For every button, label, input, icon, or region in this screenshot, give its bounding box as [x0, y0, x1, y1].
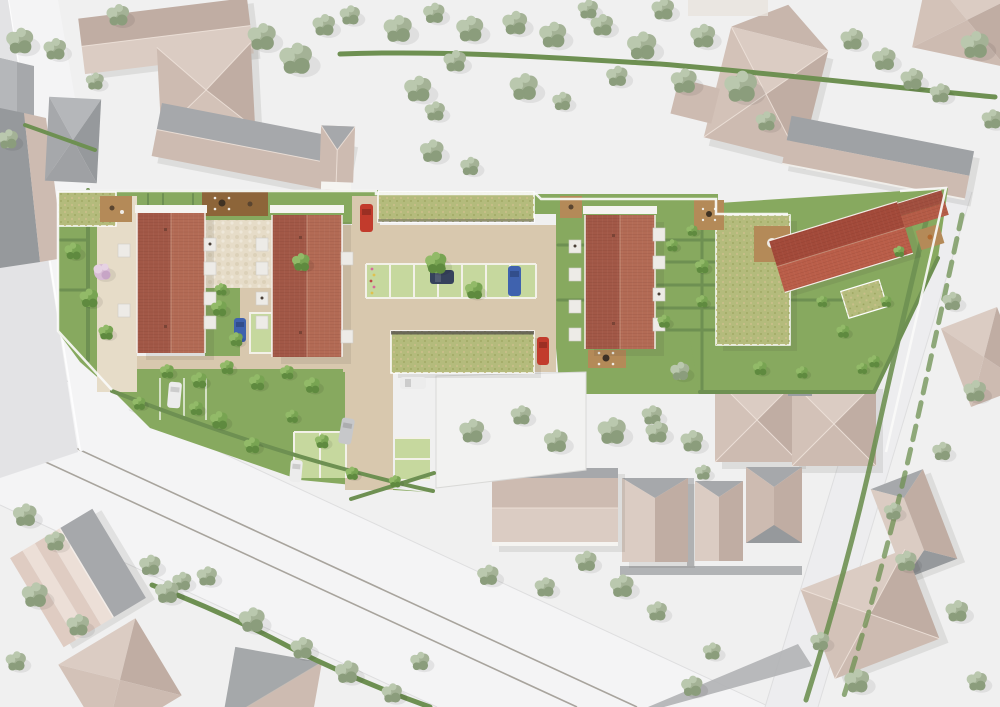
green-roof-carport-row: [378, 192, 534, 222]
rowhouse-middle: [270, 205, 351, 364]
neighbor-building: [688, 0, 768, 16]
site-plan-canvas: [0, 0, 1000, 707]
car-white: [289, 460, 303, 483]
car-white: [400, 377, 426, 389]
vacant-plot: [436, 372, 586, 488]
car-white: [167, 382, 182, 409]
car-red: [537, 337, 549, 365]
deck: [202, 192, 268, 216]
rowhouse-west: [135, 205, 214, 360]
neighbor-building: [622, 478, 695, 568]
car-blue: [508, 266, 521, 296]
green-roof-carport: [391, 331, 541, 378]
site-plan-stage: [0, 0, 1000, 707]
neighbor-building: [492, 468, 625, 552]
neighbor-building: [319, 125, 355, 190]
neighbor-building: [746, 467, 802, 543]
rowhouse-east: [583, 206, 664, 356]
deck: [100, 196, 132, 222]
car-red: [360, 204, 373, 232]
neighbor-building: [695, 481, 743, 561]
neighbor-building: [45, 97, 101, 184]
